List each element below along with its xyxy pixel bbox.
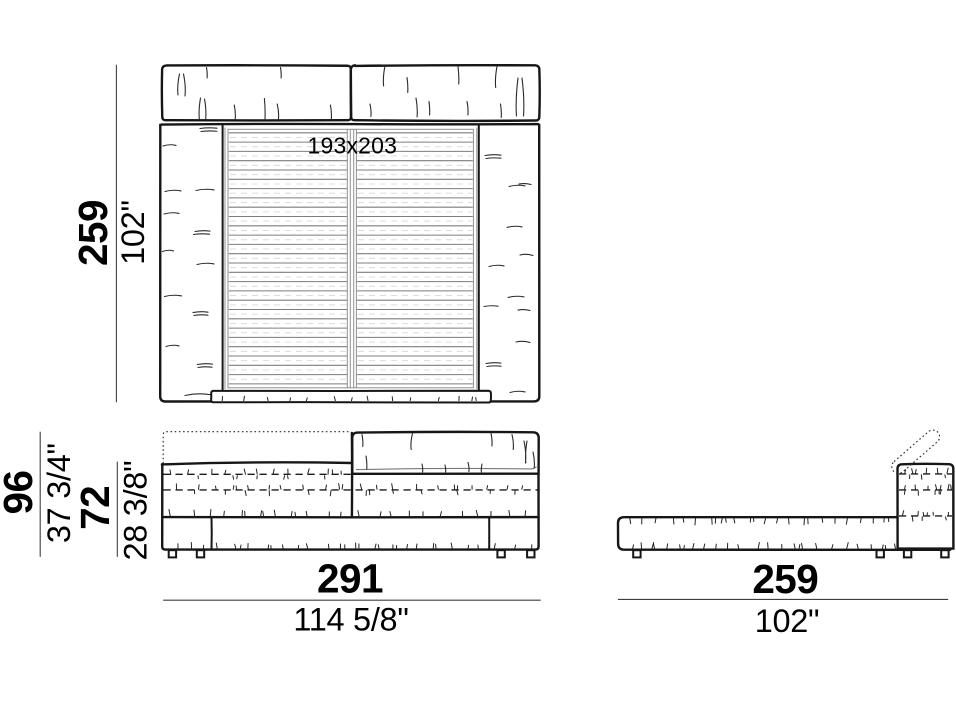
svg-text:28 3/8": 28 3/8" xyxy=(117,461,153,561)
svg-text:291: 291 xyxy=(317,555,383,601)
svg-text:193x203: 193x203 xyxy=(307,132,397,158)
svg-text:114 5/8": 114 5/8" xyxy=(293,602,408,638)
svg-text:102": 102" xyxy=(755,603,820,639)
svg-text:72: 72 xyxy=(72,486,118,530)
svg-text:259: 259 xyxy=(752,556,818,602)
svg-text:102": 102" xyxy=(115,200,151,265)
svg-text:96: 96 xyxy=(0,471,41,515)
svg-text:259: 259 xyxy=(70,200,116,266)
